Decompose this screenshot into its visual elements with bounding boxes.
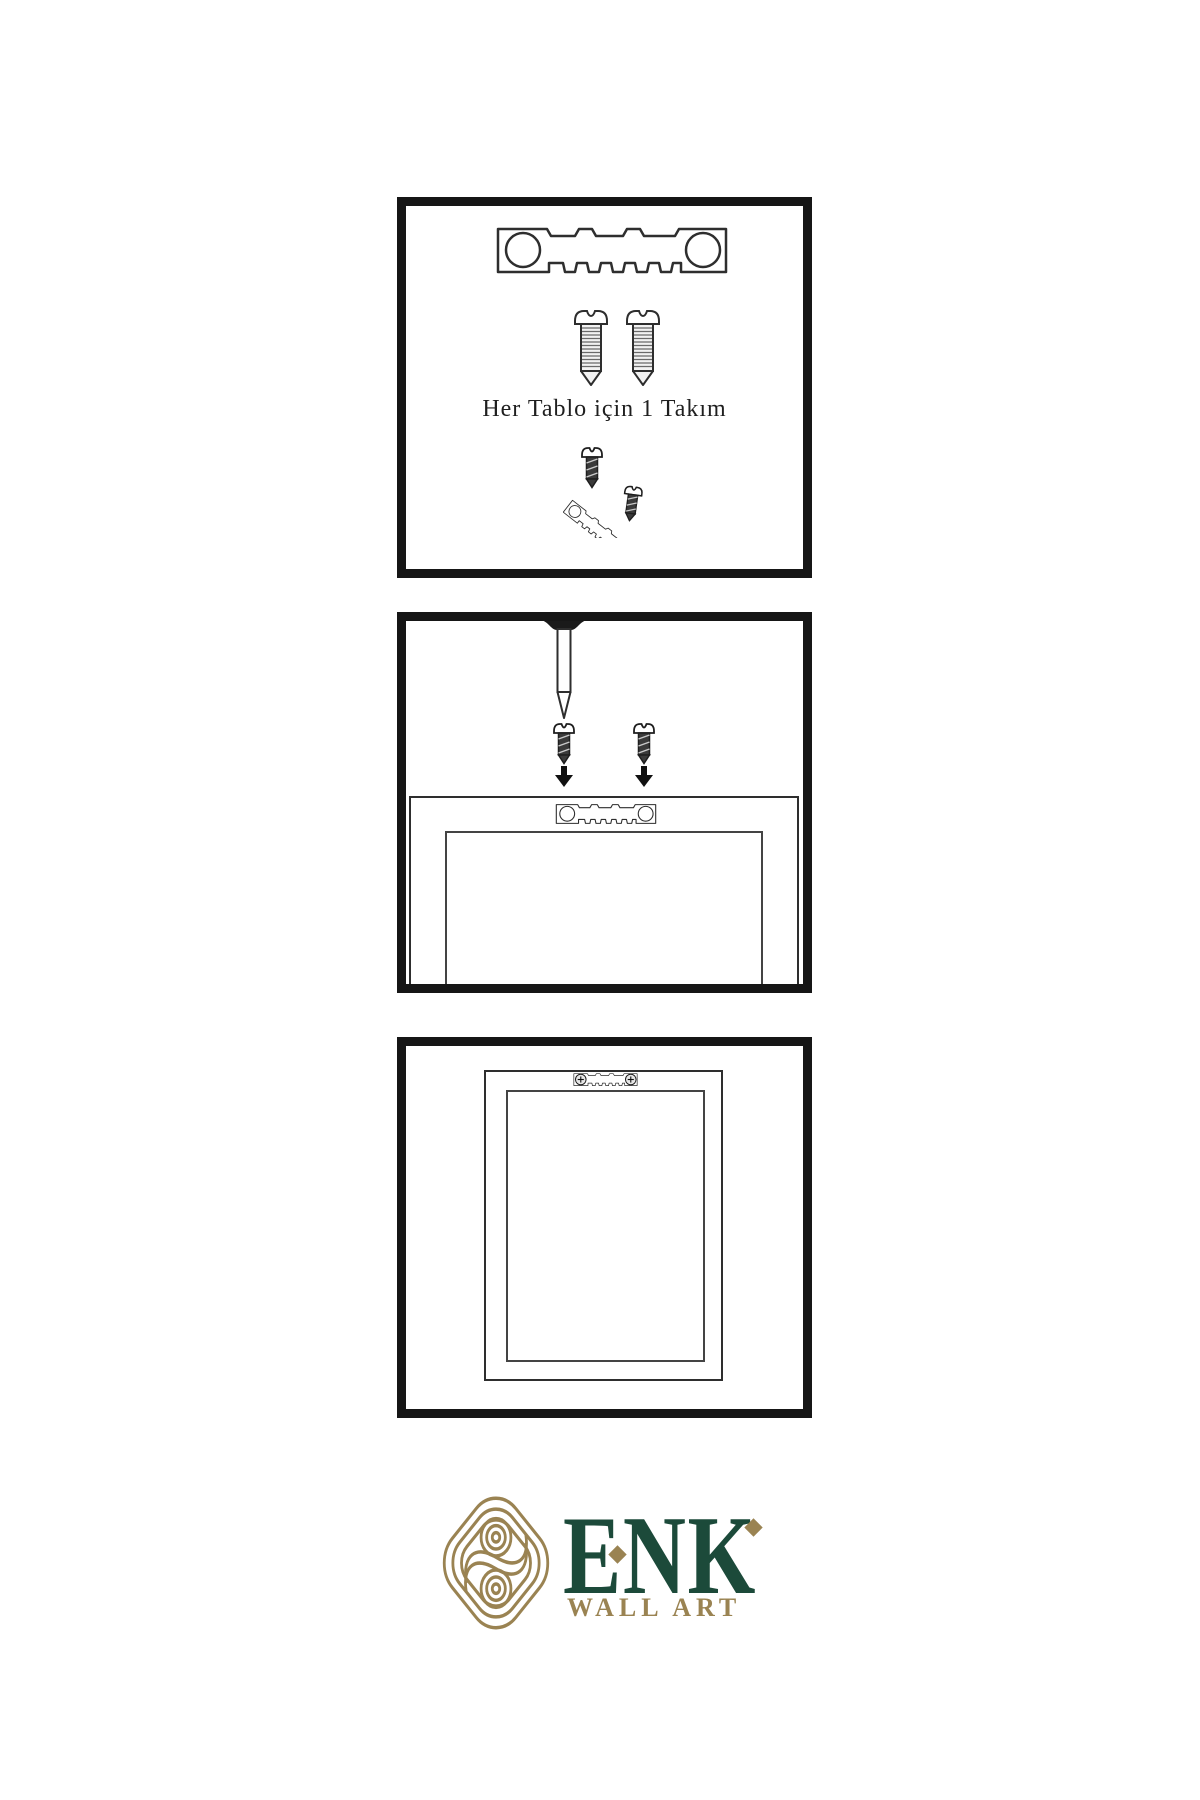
small-dark-screw-icon [621,486,643,522]
hung-frame-inner-edge [506,1090,705,1362]
panel-3-content [406,1046,803,1409]
screw-into-tilted-hanger-icon [563,446,667,538]
dark-screw-icon [553,722,575,765]
panel-hardware-kit: Her Tablo için 1 Takım [397,197,812,578]
panel-hung-frame [397,1037,812,1418]
screw-icon [625,307,661,387]
kit-caption: Her Tablo için 1 Takım [406,396,803,423]
installed-sawtooth-hanger-icon [573,1072,638,1087]
small-dark-screw-icon [582,448,602,488]
down-arrow-icon [635,766,653,788]
panel-2-content [406,621,803,984]
phillips-screw-head-icon [576,1074,587,1085]
phillips-screw-head-icon [626,1074,637,1085]
brand-tagline: WALL ART [567,1595,741,1621]
panel-mounting-steps [397,612,812,993]
panel-1-content: Her Tablo için 1 Takım [406,206,803,569]
knot-logo-icon [440,1493,552,1633]
frame-back-inner-edge [445,831,763,993]
instruction-sheet: Her Tablo için 1 Takım [0,0,1200,1800]
sawtooth-hanger-icon [555,802,657,826]
tilted-sawtooth-hanger-icon [563,500,635,538]
sawtooth-hanger-icon [495,223,729,278]
dark-screw-icon [633,722,655,765]
down-arrow-icon [555,766,573,788]
wall-nail-icon [541,618,587,722]
screw-icon [573,307,609,387]
